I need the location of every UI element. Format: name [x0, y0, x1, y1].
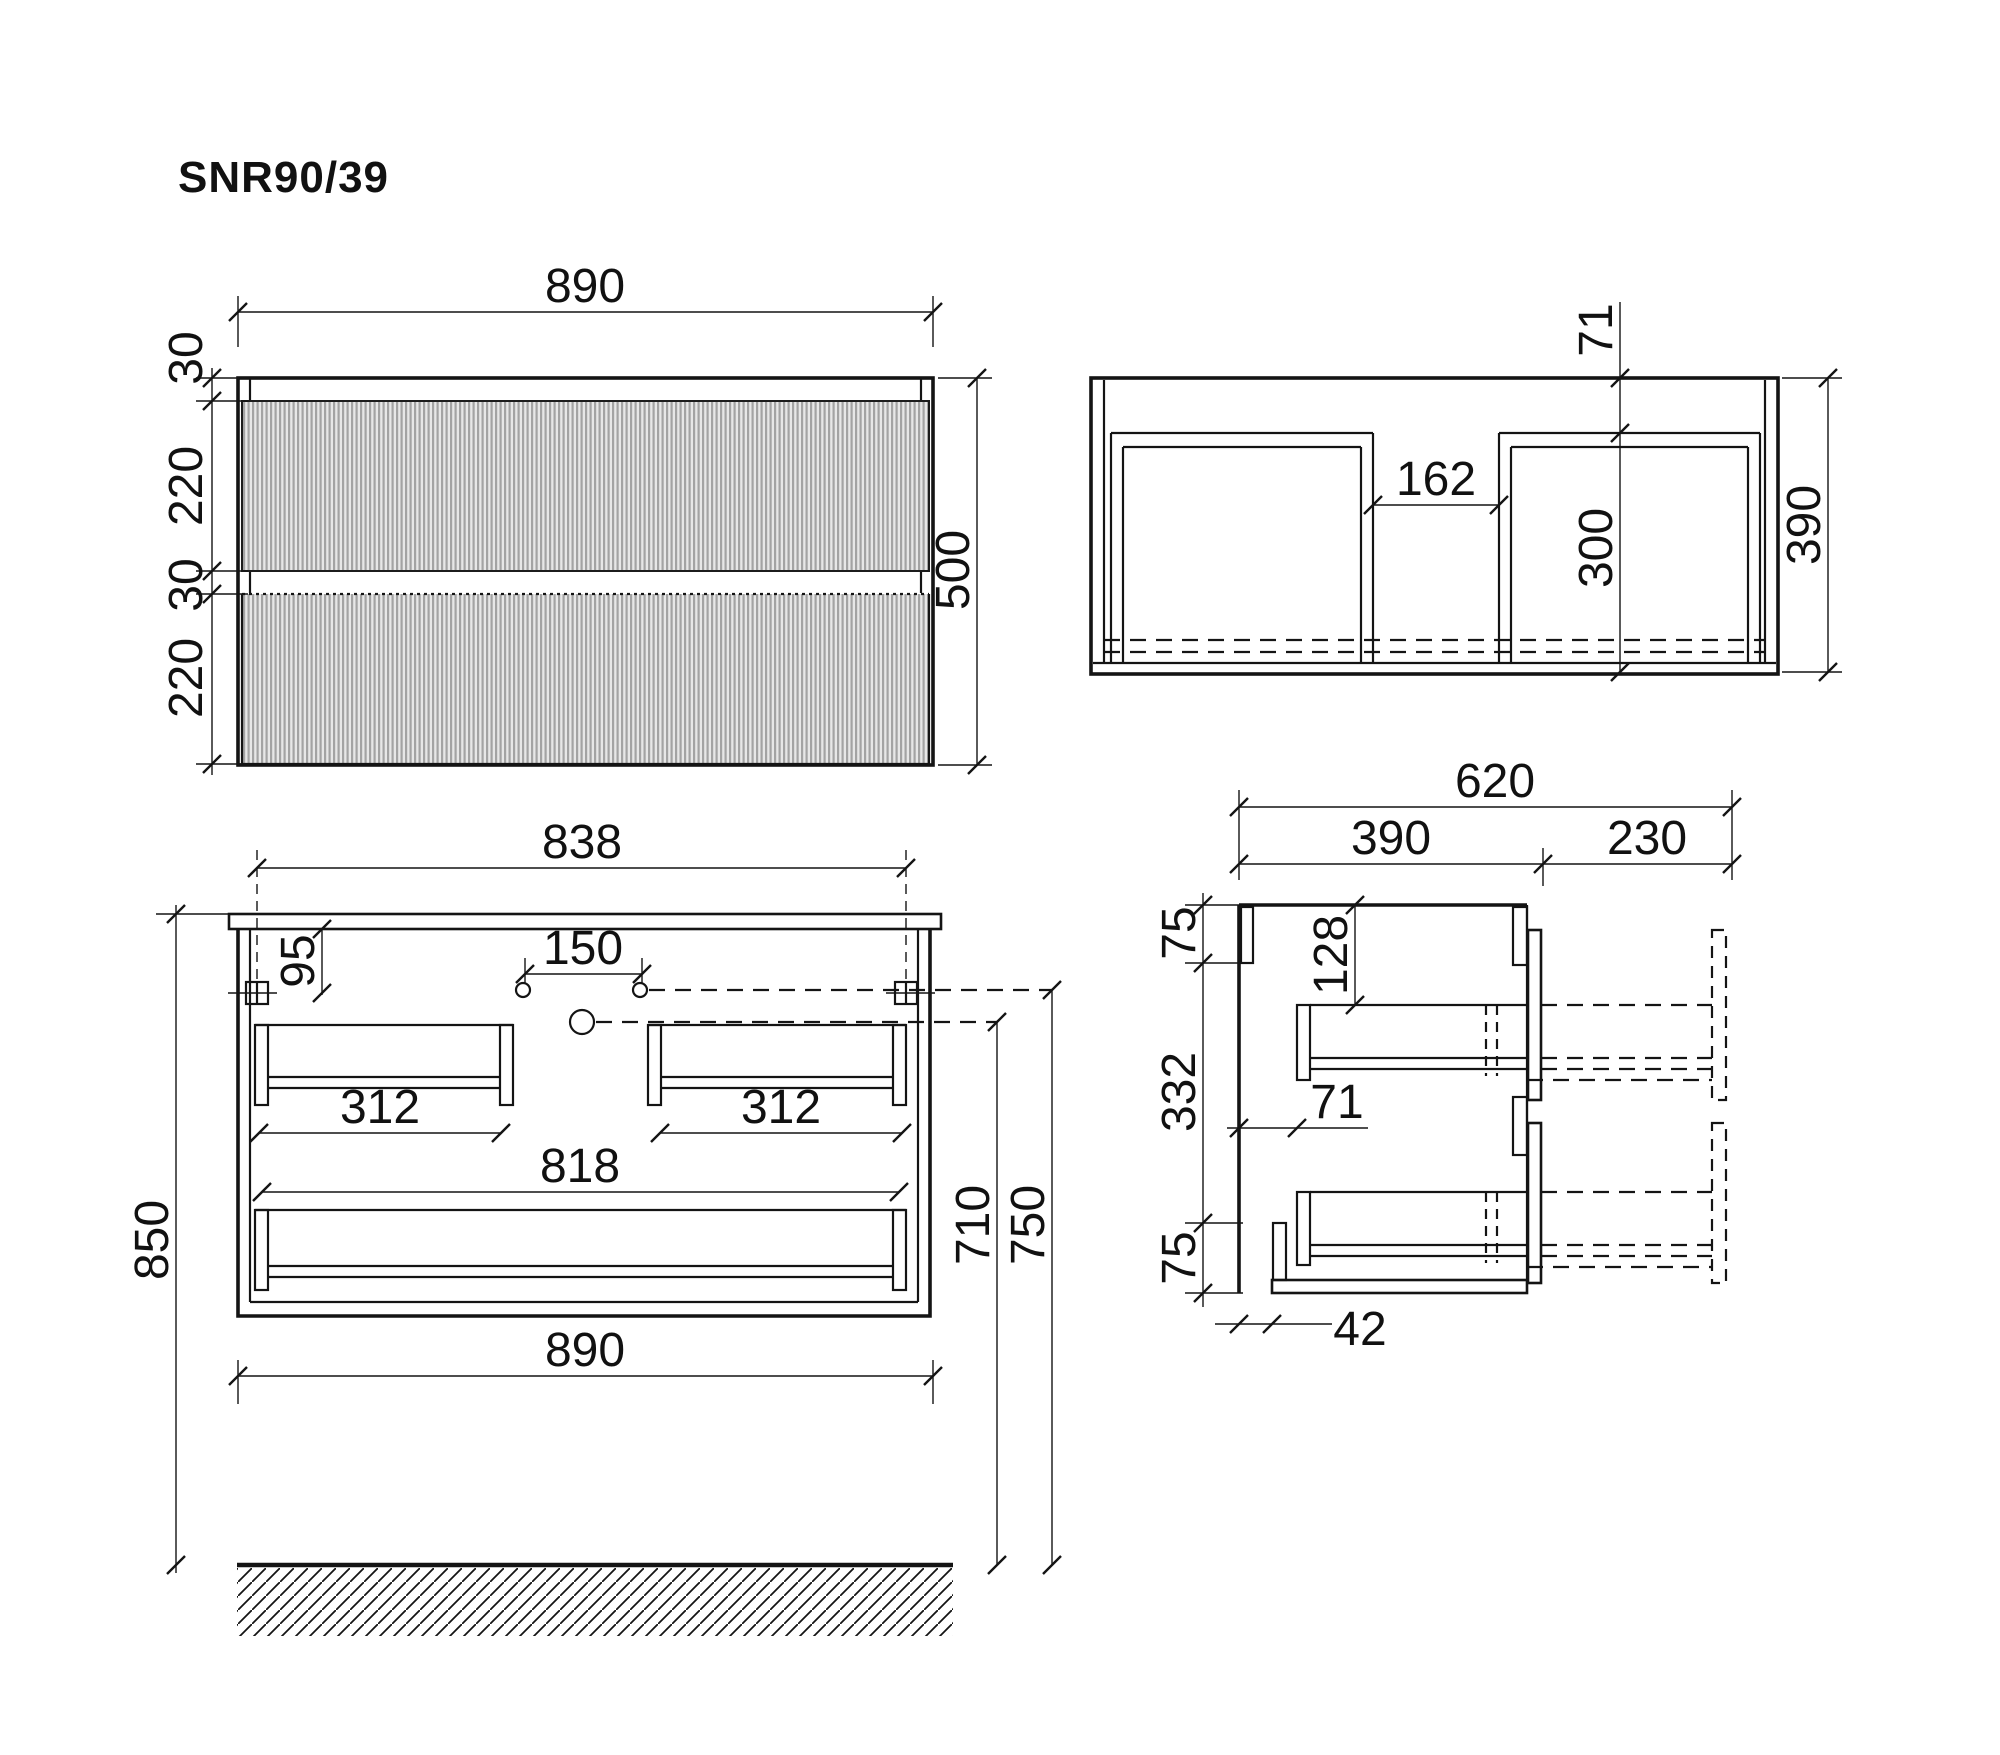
side-view: 620 390 230 75 332 75 12	[1153, 755, 1741, 1356]
dim-rail-right: 312	[741, 1081, 821, 1134]
lower-drawer-front-profile	[1528, 1123, 1541, 1283]
dim-rail-bottom: 818	[540, 1140, 620, 1193]
dim-body-depth: 390	[1351, 812, 1431, 865]
dim-front-height: 500	[927, 530, 980, 610]
dim-front-width: 890	[545, 260, 625, 313]
faucet-hole-right	[633, 983, 647, 997]
dim-mid-span: 332	[1153, 1052, 1206, 1132]
dim-rail-back-offset: 71	[1310, 1076, 1363, 1129]
drawing-page: SNR90/39 890	[0, 0, 2000, 1755]
plan-outline	[1091, 378, 1778, 674]
bottom-bracket	[1273, 1223, 1286, 1280]
dim-plan-total-depth: 390	[1778, 485, 1831, 565]
dim-total-width: 890	[545, 1324, 625, 1377]
front-top-rail	[1513, 907, 1527, 965]
lower-drawer-front	[242, 594, 929, 764]
drawing-title: SNR90/39	[178, 153, 389, 202]
dim-extended-depth: 620	[1455, 755, 1535, 808]
dim-faucet-holes: 150	[543, 922, 623, 975]
dim-top-margin: 75	[1153, 906, 1206, 959]
dim-plan-top-offset: 71	[1570, 303, 1623, 356]
dim-holes-height: 750	[1002, 1185, 1055, 1265]
left-wall-bracket	[228, 982, 277, 1004]
upper-drawer-front-profile	[1528, 930, 1541, 1100]
back-hang-rail	[1241, 907, 1253, 963]
extended-drawers	[1527, 930, 1726, 1283]
dim-bottom-inset: 42	[1333, 1303, 1386, 1356]
technical-drawing: SNR90/39 890	[0, 0, 2000, 1755]
lower-rail	[255, 1210, 906, 1290]
dim-front-middle-gap: 30	[160, 558, 213, 611]
dim-bracket-offset: 95	[272, 934, 325, 987]
dim-drain-height: 710	[947, 1185, 1000, 1265]
plan-view: 162 71 300 390	[1091, 302, 1842, 681]
dim-plan-center-gap: 162	[1396, 453, 1476, 506]
upper-drawer-box	[1297, 1005, 1527, 1080]
dim-bracket-span: 838	[542, 816, 622, 869]
upper-drawer-front	[242, 401, 929, 571]
dim-mounting-height: 850	[126, 1200, 179, 1280]
plan-view-body	[1091, 378, 1778, 674]
dim-front-lower-drawer: 220	[160, 638, 213, 718]
elevation-view: 838 95 150 312 312	[126, 816, 1061, 1636]
plan-view-dimensions: 162 71 300 390	[1364, 302, 1842, 681]
faucet-hole-left	[516, 983, 530, 997]
dim-front-upper-drawer: 220	[160, 446, 213, 526]
elevation-body	[228, 914, 1052, 1636]
dim-drawer-travel: 230	[1607, 812, 1687, 865]
lower-drawer-box	[1297, 1192, 1527, 1265]
dim-rail-left: 312	[340, 1081, 420, 1134]
dim-front-top-gap: 30	[160, 331, 213, 384]
bottom-panel	[1272, 1280, 1527, 1293]
plan-left-box	[1111, 433, 1373, 663]
front-view: 890 30 220 30 220 500	[160, 260, 992, 775]
drain-hole	[570, 1010, 594, 1034]
dim-bottom-margin: 75	[1153, 1231, 1206, 1284]
front-mid-rail	[1513, 1097, 1527, 1155]
floor-hatch	[237, 1568, 953, 1636]
dim-plan-inner-depth: 300	[1570, 508, 1623, 588]
dim-rail-top-offset: 128	[1305, 915, 1358, 995]
front-view-body	[238, 378, 933, 765]
plan-right-box	[1499, 433, 1760, 663]
right-wall-bracket	[886, 982, 935, 1004]
side-dimensions: 620 390 230 75 332 75 12	[1153, 755, 1741, 1356]
